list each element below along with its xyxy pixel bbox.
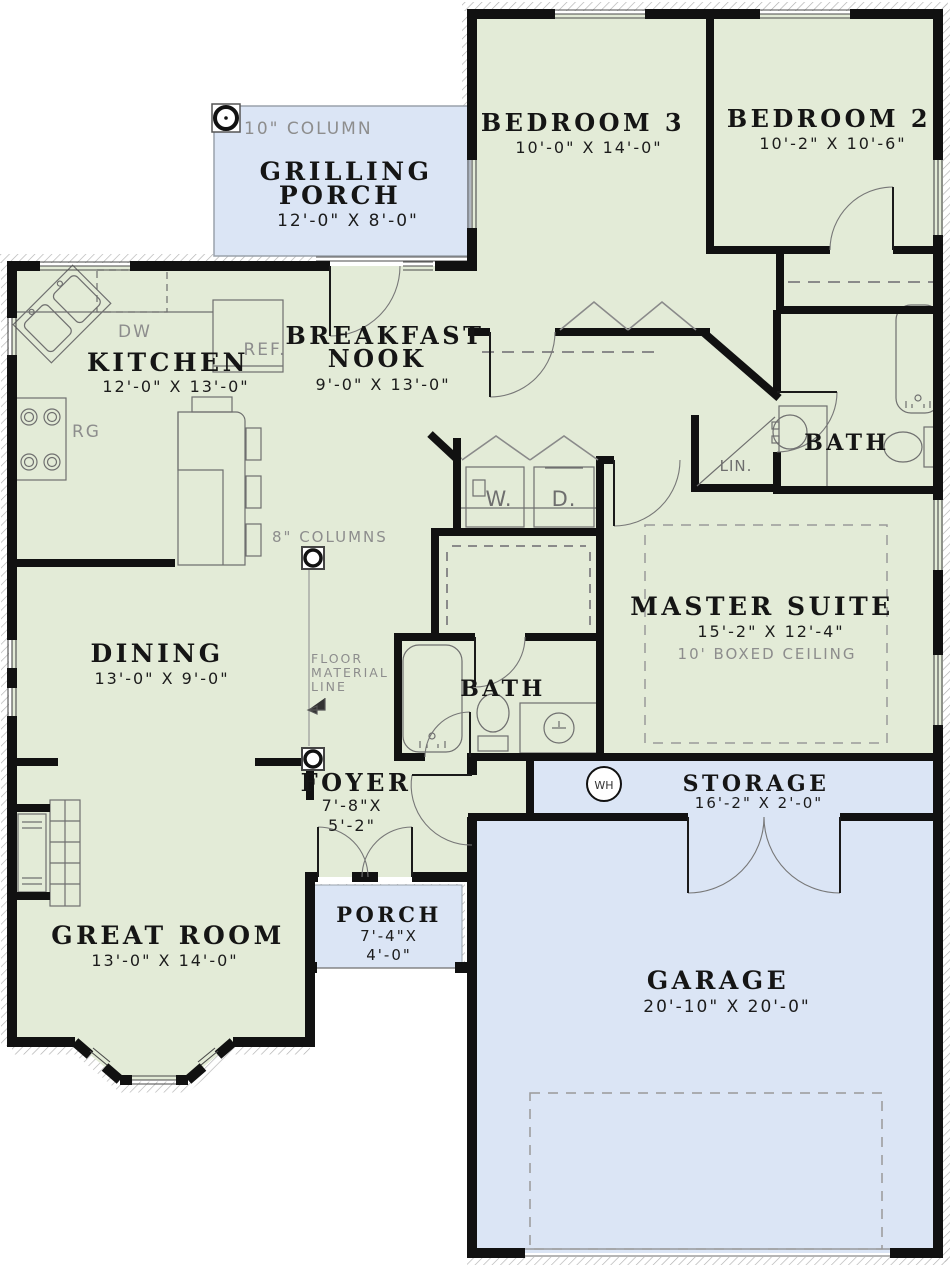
breakfast-nook-dims: 9'-0" X 13'-0" <box>315 375 450 394</box>
foyer-dims-2: 5'-2" <box>328 816 376 835</box>
foyer-dims-1: 7'-8"X <box>322 796 383 815</box>
bedroom3-dims: 10'-0" X 14'-0" <box>515 138 662 157</box>
column10-label: 10" COLUMN <box>244 119 373 139</box>
floor-material-label-3: LINE <box>311 679 347 694</box>
breakfast-nook-name-2: NOOK <box>328 344 427 373</box>
refrigerator-label: REF. <box>243 340 286 360</box>
floor-material-label-2: MATERIAL <box>311 665 389 680</box>
dishwasher-label: DW <box>118 322 152 342</box>
great-room-dims: 13'-0" X 14'-0" <box>91 951 238 970</box>
garage-dims: 20'-10" X 20'-0" <box>643 997 810 1017</box>
kitchen-name: KITCHEN <box>87 348 249 377</box>
floor-plan: GRILLING PORCH 12'-0" X 8'-0" 10" COLUMN… <box>0 0 950 1267</box>
water-heater-label: WH <box>594 779 613 792</box>
floor-plan-drawing: GRILLING PORCH 12'-0" X 8'-0" 10" COLUMN… <box>0 0 950 1267</box>
linen-label: LIN. <box>720 457 753 475</box>
garage-name: GARAGE <box>647 966 789 995</box>
bedroom2-name: BEDROOM 2 <box>727 104 931 133</box>
dryer-label: D. <box>552 487 577 511</box>
column-8in-upper <box>305 550 321 566</box>
dining-dims: 13'-0" X 9'-0" <box>94 669 229 688</box>
porch-dims-1: 7'-4"X <box>360 927 418 945</box>
master-bath-name: BATH <box>460 676 546 702</box>
washer-label: W. <box>485 487 512 511</box>
floor-material-label-1: FLOOR <box>311 651 363 666</box>
foyer-name: FOYER <box>301 768 412 797</box>
porch-dims-2: 4'-0" <box>366 946 412 964</box>
bedroom2-dims: 10'-2" X 10'-6" <box>759 134 906 153</box>
columns8-label: 8" COLUMNS <box>272 528 388 546</box>
porch-name: PORCH <box>336 902 442 927</box>
master-suite-dims: 15'-2" X 12'-4" <box>697 622 844 641</box>
bedroom3-name: BEDROOM 3 <box>481 108 685 137</box>
dining-name: DINING <box>90 639 223 668</box>
master-suite-note: 10' BOXED CEILING <box>678 645 857 663</box>
range-label: RG <box>72 422 101 442</box>
grilling-porch-dims: 12'-0" X 8'-0" <box>277 211 419 231</box>
column-8in-lower <box>305 751 321 767</box>
kitchen-dims: 12'-0" X 13'-0" <box>102 377 249 396</box>
storage-dims: 16'-2" X 2'-0" <box>695 794 823 812</box>
great-room-name: GREAT ROOM <box>51 921 285 950</box>
grilling-porch-name-2: PORCH <box>279 181 401 210</box>
hall-bath-name: BATH <box>804 430 890 456</box>
master-suite-name: MASTER SUITE <box>630 592 893 621</box>
